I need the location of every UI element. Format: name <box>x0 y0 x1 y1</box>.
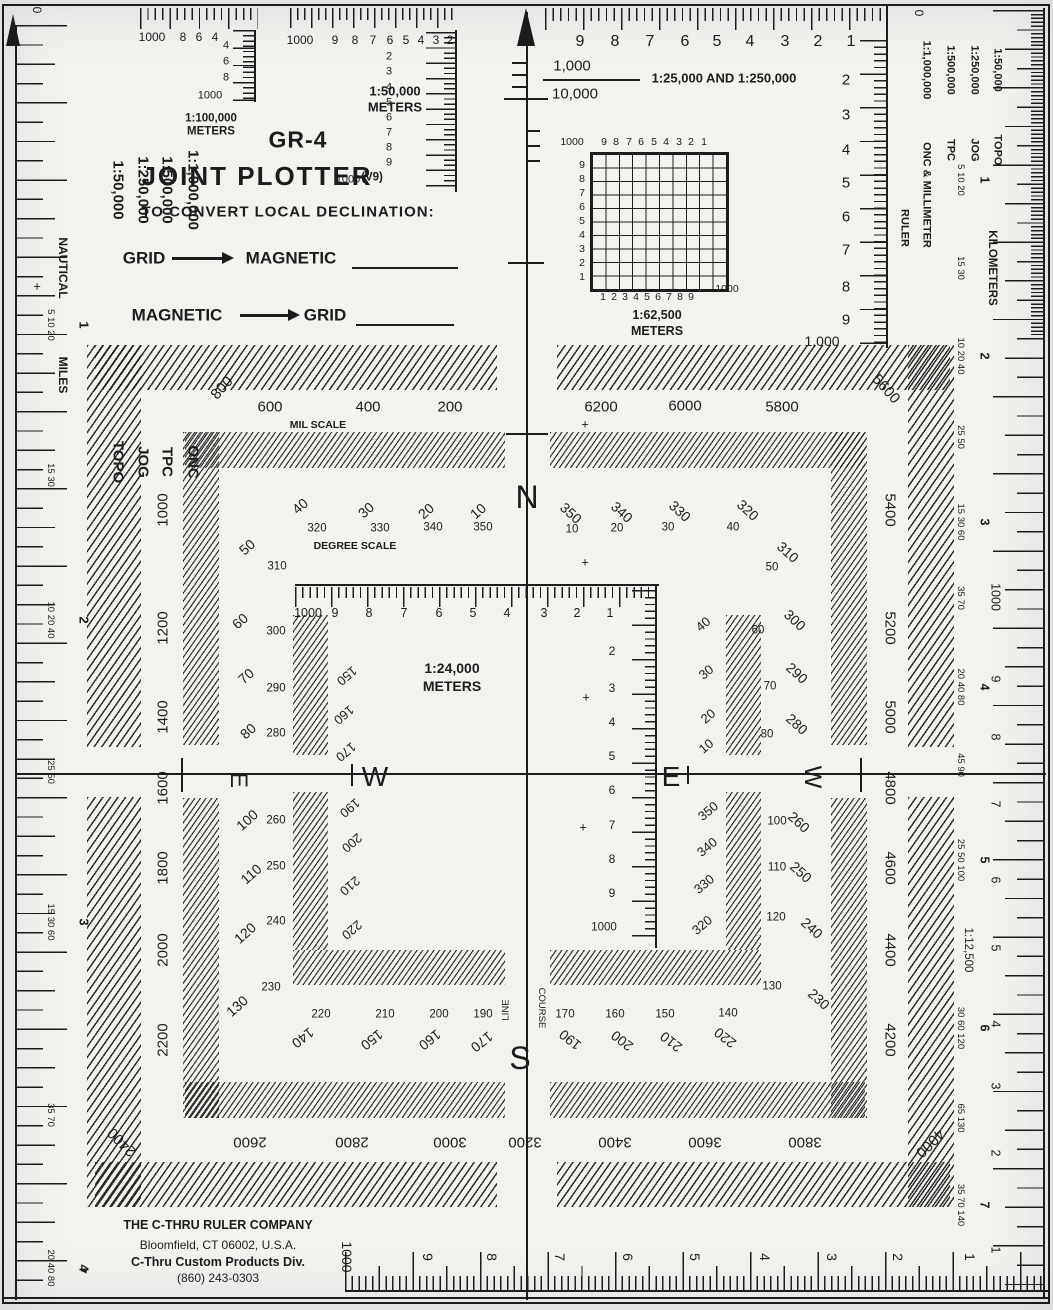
degree-number: 240 <box>266 916 285 928</box>
ruler-number: 8 <box>677 292 683 303</box>
tick-hatch-band <box>545 8 887 30</box>
ruler-number: 1 <box>847 34 856 50</box>
scale-name: 1:50,000 <box>111 160 126 219</box>
scale-name: 1:50,000 <box>992 48 1003 91</box>
registration-plus: + <box>581 418 589 431</box>
degree-number: 80 <box>238 721 259 742</box>
mil-number: 2000 <box>156 933 171 966</box>
degree-number: 110 <box>238 861 264 886</box>
inner-degree-number: 10 <box>696 736 715 755</box>
ruler-number: 8 <box>842 280 850 295</box>
ruler-number: 5 <box>688 1253 702 1261</box>
scale-type: TOPO <box>992 135 1003 166</box>
degree-number: 320 <box>307 523 326 535</box>
degree-number: 210 <box>375 1009 394 1021</box>
edge-cluster-subs: 15 30 60 <box>45 904 55 941</box>
degree-number: 10 <box>468 501 489 522</box>
company-phone: (860) 243-0303 <box>177 1272 259 1284</box>
ruler-number: 9 <box>332 607 339 620</box>
mil-number: 3400 <box>598 1135 631 1150</box>
ruler-number: 7 <box>666 292 672 303</box>
rule-line <box>2 4 4 1302</box>
tick-hatch-band <box>726 792 761 950</box>
mil-number: 5200 <box>883 611 898 644</box>
edge-cluster-subs: 25 50 <box>955 425 965 449</box>
scale-type: ONC & MILLIMETER <box>921 142 932 248</box>
degree-number: 300 <box>782 607 809 633</box>
rule-line <box>512 86 526 88</box>
cardinal-e-rotated: E <box>226 772 250 788</box>
ruler-number: 1 <box>963 1253 977 1261</box>
degree-number: 80 <box>761 729 774 741</box>
ruler-number: 6 <box>579 202 585 213</box>
arrow-right-icon <box>222 252 234 264</box>
degree-number: 50 <box>766 562 779 574</box>
scale-type: JOG <box>969 138 980 161</box>
ruler-number: 3 <box>842 108 850 123</box>
degree-number: 220 <box>711 1025 738 1050</box>
degree-number: 170 <box>468 1029 495 1054</box>
course-label: COURSE <box>536 988 546 1029</box>
scale-name: 1:500,000 <box>945 45 956 95</box>
degree-number: 200 <box>429 1009 448 1021</box>
ruler-number: 5 <box>644 292 650 303</box>
ruler-number: 5 <box>713 34 722 50</box>
rule-line <box>860 758 862 792</box>
tick-hatch-band <box>233 30 255 102</box>
degree-number: 160 <box>605 1009 624 1021</box>
ruler-number: 7 <box>646 34 655 50</box>
tick-hatch-band <box>831 798 867 1118</box>
degree-scale-label: DEGREE SCALE <box>314 541 397 552</box>
degree-number: 20 <box>611 523 624 535</box>
inner-degree-number: 330 <box>692 872 717 896</box>
edge-cluster-subs: 10 20 40 <box>45 602 55 639</box>
scale-type: JOG <box>136 446 151 478</box>
degree-number: 120 <box>232 920 259 946</box>
edge-cluster-main: 3 <box>78 918 91 925</box>
scale-type: TPC <box>945 139 956 161</box>
scale-name: 1:250,000 <box>136 156 151 224</box>
mil-number: 3000 <box>433 1135 466 1150</box>
north-arrow-icon <box>517 8 535 46</box>
ruler-number: 7 <box>553 1253 567 1261</box>
degree-number: 190 <box>556 1027 583 1052</box>
declination-grid-label: GRID <box>123 250 166 267</box>
mil-number: 4600 <box>883 851 898 884</box>
ruler-number: 6 <box>638 137 644 148</box>
ruler-number: 1000 <box>294 607 322 620</box>
degree-number: 140 <box>289 1025 316 1050</box>
tick-hatch-band <box>550 432 865 468</box>
rule-line <box>504 98 548 100</box>
edge-cluster-main: 4 <box>78 1264 91 1271</box>
degree-number: 220 <box>311 1009 330 1021</box>
ruler-number: 8 <box>366 607 373 620</box>
mil-number: 5000 <box>883 700 898 733</box>
mil-number: 1000 <box>156 493 171 526</box>
ruler-number: 5 <box>609 750 616 762</box>
ruler-number: 1 <box>600 292 606 303</box>
ruler-number: 6 <box>387 34 394 46</box>
arrow-right-icon-2 <box>288 309 300 321</box>
mil-number: 1800 <box>156 851 171 884</box>
ruler-number: 2 <box>574 607 581 620</box>
scale-type: RULER <box>899 209 910 247</box>
degree-number: 310 <box>267 561 286 573</box>
inner-degree-number: 30 <box>696 662 715 681</box>
ruler-label: 1:25,000 AND 1:250,000 <box>652 72 797 85</box>
edge-unit-label: MILES <box>57 357 69 394</box>
edge-plus: + <box>33 280 41 293</box>
tick-hatch-band <box>295 587 659 607</box>
registration-plus: + <box>582 691 590 704</box>
edge-cluster-subs: 35 70 <box>45 1103 55 1127</box>
edge-unit-label: KILOMETERS <box>985 230 997 305</box>
degree-number: 350 <box>558 500 585 526</box>
edge-cluster-main: 5 <box>978 857 991 864</box>
ruler-number: 6 <box>609 784 616 796</box>
tick-hatch-band <box>185 1082 505 1118</box>
tick-hatch-band <box>550 1082 865 1118</box>
scale-name: 1:1,000,000 <box>921 41 932 100</box>
ruler-number: 6 <box>655 292 661 303</box>
degree-number: 120 <box>766 912 785 924</box>
mil-number: 1400 <box>156 700 171 733</box>
ruler-number: 6 <box>842 210 850 225</box>
degree-number: 50 <box>237 537 258 558</box>
ruler-number: 4 <box>579 230 585 241</box>
ruler-number: 3 <box>781 34 790 50</box>
tick-hatch-band <box>908 345 954 747</box>
gr4-joint-plotter: GR-4 JOINT PLOTTER (V9) TO CONVERT LOCAL… <box>0 0 1053 1310</box>
edge-meter-number: 3 <box>989 1083 1002 1090</box>
tick-hatch-band <box>183 432 219 745</box>
degree-number: 210 <box>657 1029 684 1054</box>
meters-grid-62500 <box>590 152 729 292</box>
degree-number: 110 <box>768 862 786 874</box>
cardinal-e: E <box>662 763 681 791</box>
ruler-number: 5 <box>403 34 410 46</box>
ruler-number: 3 <box>622 292 628 303</box>
degree-number: 280 <box>266 728 285 740</box>
ruler-number: 5 <box>470 607 477 620</box>
degree-number: 160 <box>416 1027 443 1052</box>
ruler-number: 7 <box>386 128 392 139</box>
ruler-number: 7 <box>401 607 408 620</box>
rule-line <box>526 12 528 1300</box>
inner-degree-number: 20 <box>698 706 717 725</box>
ruler-number: 3 <box>386 67 392 78</box>
ruler-number: 4 <box>746 34 755 50</box>
inner-degree-number: 150 <box>335 664 360 688</box>
degree-number: 140 <box>718 1008 737 1020</box>
ruler-number: 8 <box>611 34 620 50</box>
mil-number: 400 <box>355 400 380 415</box>
rule-line <box>512 74 526 76</box>
plotter-model: GR-4 <box>269 129 328 152</box>
ruler-number: 4 <box>223 41 229 52</box>
inner-degree-number: 200 <box>340 831 365 855</box>
inner-degree-number: 210 <box>338 874 363 898</box>
degree-number: 30 <box>662 522 675 534</box>
inner-degree-number: 160 <box>332 703 357 727</box>
ruler-number: 8 <box>223 73 229 84</box>
edge-cluster-main: 1 <box>78 321 91 328</box>
ruler-number: 6 <box>681 34 690 50</box>
inner-degree-number: 220 <box>340 918 365 942</box>
ruler-label: 1:50,000 <box>369 85 420 98</box>
registration-plus: + <box>581 556 589 569</box>
ruler-number: 1000 <box>139 31 166 43</box>
mil-number: 1600 <box>156 771 171 804</box>
ruler-number: 8 <box>386 143 392 154</box>
ruler-number: 3 <box>541 607 548 620</box>
edge-cluster-main: 3 <box>978 519 991 526</box>
degree-number: 150 <box>655 1009 674 1021</box>
rule-line <box>886 6 888 348</box>
ruler-number: 7 <box>842 243 850 258</box>
inner-degree-number: 350 <box>696 799 721 823</box>
degree-number: 20 <box>416 501 437 522</box>
tick-hatch-band <box>426 32 456 190</box>
degree-number: 230 <box>806 986 833 1012</box>
edge-cluster-subs: 65 130 <box>955 1103 965 1132</box>
ruler-number: 1000 <box>591 922 617 934</box>
ruler-number: 9 <box>576 34 585 50</box>
edge-cluster-subs: 20 40 80 <box>955 669 965 706</box>
edge-cluster-subs: 5 10 20 <box>45 309 55 341</box>
mil-number: 200 <box>437 400 462 415</box>
scale-name: 1:1,000,000 <box>186 150 201 230</box>
edge-zero: 0 <box>913 10 925 17</box>
ruler-number: 2 <box>386 52 392 63</box>
degree-number: 60 <box>230 611 251 632</box>
inner-degree-number: 40 <box>693 614 712 633</box>
edge-cluster-subs: 35 70 <box>955 586 965 610</box>
edge-unit-label: NAUTICAL <box>57 237 69 298</box>
ruler-label: METERS <box>368 101 422 114</box>
mil-scale-label: MIL SCALE <box>290 420 346 431</box>
tick-hatch-band <box>860 40 886 345</box>
rule-line <box>1043 8 1045 1298</box>
mil-number: 3200 <box>508 1135 541 1150</box>
inner-degree-number: 340 <box>695 835 720 859</box>
ruler-number: 7 <box>370 34 377 46</box>
ruler-number: 9 <box>688 292 694 303</box>
rule-line <box>526 145 540 147</box>
declination-magnetic-label: MAGNETIC <box>246 250 337 267</box>
ruler-number: 1000 <box>560 137 583 148</box>
degree-number: 70 <box>764 681 777 693</box>
ruler-number: 3 <box>676 137 682 148</box>
edge-cluster-subs: 20 40 80 <box>45 1250 55 1287</box>
ruler-label: 1:100,000 <box>185 113 237 125</box>
mil-number: 2200 <box>156 1023 171 1056</box>
rule-line <box>2 1302 1050 1304</box>
tick-hatch-band <box>293 792 328 950</box>
tick-hatch-band <box>550 950 761 985</box>
tick-hatch-band <box>17 25 67 1297</box>
tick-hatch-band <box>293 950 505 985</box>
cardinal-s: S <box>509 1042 530 1074</box>
edge-meter-number: 1000 <box>989 583 1002 611</box>
edge-scale-12500: 1:12,500 <box>961 928 973 973</box>
ruler-number: 2 <box>579 258 585 269</box>
rule-line <box>526 130 540 132</box>
scale-type: TPC <box>160 447 175 477</box>
degree-number: 290 <box>784 660 811 686</box>
degree-number: 310 <box>775 539 802 565</box>
tick-hatch-band <box>293 615 328 755</box>
inner-degree-number: 320 <box>690 913 715 937</box>
mil-number: 4200 <box>883 1023 898 1056</box>
fraction-numerator: 1,000 <box>553 59 591 74</box>
degree-number: 250 <box>788 859 815 885</box>
ruler-number: 2 <box>891 1253 905 1261</box>
line-label: LINE <box>501 999 511 1020</box>
mil-number: 6000 <box>668 399 701 414</box>
ruler-number: 1000 <box>715 284 738 295</box>
edge-cluster-subs: 15 30 <box>955 256 965 280</box>
tick-hatch-band <box>290 8 458 28</box>
degree-number: 170 <box>555 1009 574 1021</box>
edge-zero: 0 <box>31 7 43 14</box>
ruler-number: 8 <box>579 174 585 185</box>
rule-line <box>1048 4 1050 1302</box>
ruler-number: 4 <box>663 137 669 148</box>
degree-number: 40 <box>727 522 740 534</box>
tick-hatch-band <box>183 798 219 1118</box>
ruler-number: 2 <box>611 292 617 303</box>
mil-number: 2800 <box>335 1135 368 1150</box>
fraction-denominator: 10,000 <box>552 87 598 102</box>
tick-hatch-band <box>95 345 497 390</box>
edge-meter-number: 5 <box>989 945 1002 952</box>
mil-number: 4800 <box>883 771 898 804</box>
ruler-number: 6 <box>621 1253 635 1261</box>
ruler-number: 3 <box>433 34 440 46</box>
declination-grid-label-2: GRID <box>304 307 347 324</box>
edge-cluster-main: 7 <box>978 1202 991 1209</box>
rule-line <box>508 262 544 264</box>
fill-in-line-2 <box>356 324 454 326</box>
tick-hatch-band <box>140 8 258 29</box>
ruler-number: 9 <box>332 34 339 46</box>
inner-degree-number: 190 <box>338 796 363 820</box>
edge-cluster-subs: 15 30 60 <box>955 504 965 541</box>
rule-line <box>687 766 689 784</box>
degree-number: 340 <box>423 522 442 534</box>
degree-number: 280 <box>784 711 811 737</box>
arrow-line-2 <box>240 314 290 317</box>
ruler-number: 1000 <box>287 34 314 46</box>
mil-number: 2600 <box>233 1135 266 1150</box>
degree-number: 190 <box>473 1009 492 1021</box>
edge-meter-number: 8 <box>989 734 1002 741</box>
ruler-number: 7 <box>626 137 632 148</box>
plotter-version: (V9) <box>361 172 383 184</box>
edge-cluster-subs: 15 30 <box>45 463 55 487</box>
ruler-number: 4 <box>633 292 639 303</box>
ruler-number: 4 <box>418 34 425 46</box>
cardinal-n: N <box>515 481 538 513</box>
ruler-number: 9 <box>842 313 850 328</box>
mil-number: 3600 <box>688 1135 721 1150</box>
rule-line <box>543 79 640 81</box>
ruler-number: 4 <box>504 607 511 620</box>
inner-degree-number: 170 <box>334 740 359 764</box>
edge-cluster-main: 2 <box>978 353 991 360</box>
degree-number: 290 <box>266 683 285 695</box>
mil-number: 5400 <box>883 493 898 526</box>
cardinal-w-rotated: W <box>800 766 824 789</box>
ruler-number: 8 <box>180 31 187 43</box>
ruler-number: 2 <box>814 34 823 50</box>
arrow-line <box>172 257 224 260</box>
edge-meter-number: 9 <box>989 676 1002 683</box>
edge-cluster-main: 2 <box>78 616 91 623</box>
rule-line <box>512 62 526 64</box>
degree-number: 260 <box>786 809 813 835</box>
degree-number: 100 <box>234 807 261 833</box>
degree-number: 320 <box>735 497 762 523</box>
ruler-number: 5 <box>842 176 850 191</box>
ruler-number: 2 <box>688 137 694 148</box>
company-address: Bloomfield, CT 06002, U.S.A. <box>140 1239 297 1251</box>
ruler-number: 1,000 <box>804 334 839 348</box>
edge-cluster-main: 1 <box>978 177 991 184</box>
ruler-number: 3 <box>579 244 585 255</box>
ruler-number: 6 <box>223 57 229 68</box>
ruler-label: METERS <box>423 679 481 693</box>
edge-meter-number: 2 <box>989 1150 1002 1157</box>
rule-line <box>2 4 1050 6</box>
ruler-number: 2 <box>447 34 454 46</box>
mil-number: 4400 <box>883 933 898 966</box>
tick-hatch-band <box>185 432 505 468</box>
ruler-label: METERS <box>187 126 235 138</box>
edge-meter-number: 4 <box>989 1021 1002 1028</box>
ruler-number: 3 <box>825 1253 839 1261</box>
degree-number: 150 <box>358 1027 385 1052</box>
ruler-number: 2 <box>842 73 850 88</box>
scale-name: 1:250,000 <box>969 45 980 95</box>
ruler-number: 2 <box>609 645 616 657</box>
ruler-number: 6 <box>196 31 203 43</box>
ruler-number: 9 <box>601 137 607 148</box>
degree-number: 100 <box>767 816 786 828</box>
tick-hatch-band <box>632 590 656 942</box>
edge-meter-number: 7 <box>989 801 1002 808</box>
degree-number: 30 <box>356 500 377 521</box>
ruler-number: 9 <box>421 1253 435 1261</box>
edge-cluster-subs: 35 70 140 <box>955 1184 965 1226</box>
edge-cluster-main: 4 <box>978 684 991 691</box>
ruler-label: METERS <box>631 325 683 338</box>
ruler-number: 9 <box>609 887 616 899</box>
ruler-number: 4 <box>609 716 616 728</box>
ruler-number: 7 <box>609 819 616 831</box>
ruler-number: 1 <box>701 137 707 148</box>
ruler-number: 1 <box>607 607 614 620</box>
edge-meter-number: 6 <box>989 877 1002 884</box>
rule-line <box>526 160 540 162</box>
declination-magnetic-label-2: MAGNETIC <box>132 307 223 324</box>
ruler-number: 3 <box>609 682 616 694</box>
degree-number: 10 <box>566 524 579 536</box>
mil-number: 600 <box>257 400 282 415</box>
